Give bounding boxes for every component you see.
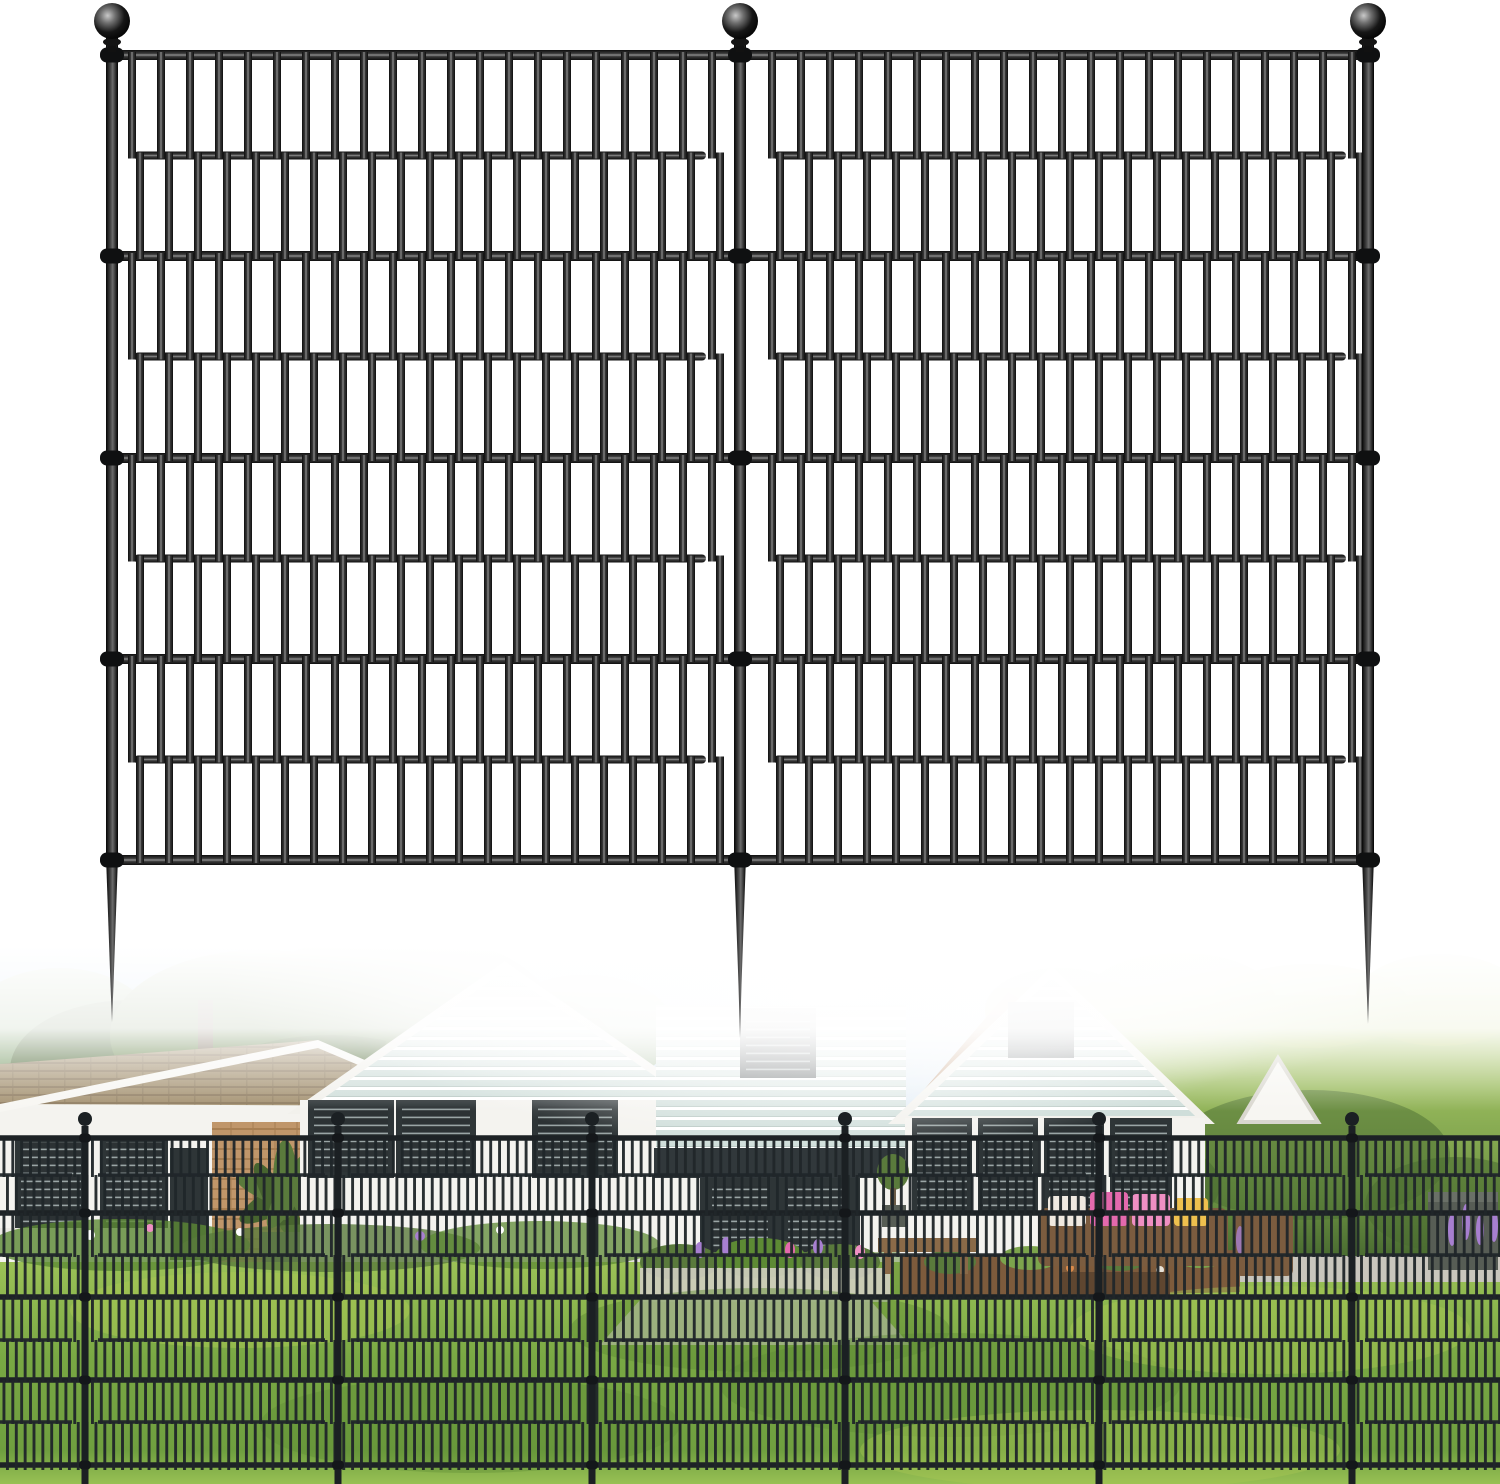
fence-bar [621,656,629,763]
fence-bar [716,556,724,663]
fence-bar [128,52,136,159]
fence-bar [310,153,318,260]
fence-bar [855,52,863,159]
fence-bar [629,556,637,663]
rail-connector [1356,652,1380,667]
fence-bar [505,253,513,360]
fence-bar [389,253,397,360]
fence-bar [1269,556,1277,663]
fence-bar [331,52,339,159]
fence-bar [360,455,368,562]
fence-bar [1145,52,1153,159]
fence-bar [1116,253,1124,360]
fence-bar [1232,253,1240,360]
fence-bar [950,556,958,663]
rail-connector [100,451,124,466]
fence-bar [1319,253,1327,360]
fence-bar [310,354,318,462]
fence-bar [571,354,579,462]
fence-bar [1269,757,1277,864]
fence-bar [863,556,871,663]
fence-bar [1058,52,1066,159]
fence-bar [921,757,929,864]
fence-bar [592,52,600,159]
fence-bar [826,52,834,159]
fence-bar [1240,556,1248,663]
scene-rail-connector [332,1293,344,1302]
rail-connector [1356,853,1380,868]
fence-bar [281,757,289,864]
fence-bar [542,153,550,260]
fence-bar [165,757,173,864]
fence-bar [513,556,521,663]
scene-rail-connector [1093,1461,1105,1470]
fence-bar [542,556,550,663]
fence-bar [600,354,608,462]
fence-bar [273,656,281,763]
fence-bar [273,52,281,159]
fence-bar [194,556,202,663]
fence-bar [368,757,376,864]
scene-fence-post [1096,1126,1103,1484]
fence-bar [476,253,484,360]
fence-bar [797,656,805,763]
fence-bar [942,253,950,360]
fence-bar [1029,253,1037,360]
scene-rail-connector [1346,1293,1358,1302]
fence-bar [863,354,871,462]
fence-bar [157,455,165,562]
fence-bar [418,455,426,562]
fence-bar [679,656,687,763]
scene-fence-inset-rail [605,1338,832,1342]
fence-bar [157,656,165,763]
fence-bar [1232,455,1240,562]
scene-fence-post [842,1126,849,1484]
fence-bar [273,455,281,562]
fence-bar [621,455,629,562]
fence-bar [1182,757,1190,864]
fence-bar [1327,153,1335,260]
fence-bar [892,757,900,864]
fence-bar [1037,153,1045,260]
fence-bar [476,455,484,562]
fence-bar [1327,556,1335,663]
fence-bar [281,153,289,260]
fence-bar [128,455,136,562]
scene-post-finial [1345,1112,1359,1126]
fence-product-scene [0,0,1500,1484]
fence-bar [1066,354,1074,462]
fence-bar [1211,757,1219,864]
scene-fence-post [82,1126,89,1484]
fence-bar [1058,455,1066,562]
fence-bar [1298,556,1306,663]
fence-bar [687,757,695,864]
scene-rail-connector [1346,1209,1358,1218]
scene-rail-connector [1093,1134,1105,1143]
fence-bar [244,253,252,360]
fence-bar [505,455,513,562]
fence-bar [447,253,455,360]
fence-bar [1203,656,1211,763]
fence-bar [339,556,347,663]
fence-bar [157,253,165,360]
fence-bar [310,556,318,663]
scene-rail-connector [839,1376,851,1385]
scene-fence-inset-rail [605,1253,832,1257]
fence-bar [1029,52,1037,159]
fence-bar [505,656,513,763]
fence-bar [331,455,339,562]
fence-bar [892,556,900,663]
fence-bar [658,153,666,260]
fence-bar [1298,153,1306,260]
fence-bar [884,656,892,763]
fence-bar [1174,52,1182,159]
fence-bar [834,153,842,260]
fence-bar [1319,656,1327,763]
fence-bar [621,52,629,159]
fence-bar [1348,52,1356,159]
scene-rail-connector [839,1293,851,1302]
rail-connector [1356,249,1380,264]
scene-rail-connector [79,1293,91,1302]
fence-bar [805,153,813,260]
fence-bar [629,153,637,260]
fence-bar [513,354,521,462]
scene-rail-connector [839,1209,851,1218]
fence-bar [942,455,950,562]
fence-bar [716,757,724,864]
fence-bar [447,656,455,763]
fence-bar [1008,153,1016,260]
flower [146,1224,154,1232]
fence-bar [426,354,434,462]
fence-bar [884,253,892,360]
fence-bar [1327,757,1335,864]
scene-rail-connector [1346,1461,1358,1470]
scene-fence-bars [6,1422,1496,1470]
fence-bar [563,253,571,360]
fence-bar [1058,253,1066,360]
fence-bar [484,757,492,864]
fence-bar [1240,354,1248,462]
fence-bar [592,253,600,360]
fence-bar [971,52,979,159]
fence-bar [1203,52,1211,159]
fence-bar [389,52,397,159]
fence-bar [1145,656,1153,763]
fence-bar [165,556,173,663]
fence-bar [1153,354,1161,462]
scene-post-finial [78,1112,92,1126]
fence-bar [1153,556,1161,663]
fence-bar [1095,354,1103,462]
scene-rail-connector [1346,1376,1358,1385]
fence-bar [855,455,863,562]
fence-bar [302,656,310,763]
fence-bar [1348,656,1356,763]
fence-bar [921,556,929,663]
fence-bar [1203,455,1211,562]
fence-bar [339,757,347,864]
fence-bar [708,455,716,562]
photo-top-fade [0,946,1500,1111]
fence-bar [1087,52,1095,159]
garden-bench [878,1238,978,1252]
fence-bar [1153,757,1161,864]
post-finial-ball [722,3,758,39]
fence-bar [1000,656,1008,763]
post-finial-ball [94,3,130,39]
fence-bar [687,153,695,260]
fence-bar [826,455,834,562]
fence-bar [360,253,368,360]
fence-bar [339,354,347,462]
scene-rail-connector [1346,1134,1358,1143]
fence-bar [302,455,310,562]
fence-bar [136,556,144,663]
fence-bar [1232,52,1240,159]
fence-bar [768,52,776,159]
fence-bar [1211,556,1219,663]
fence-bar [331,656,339,763]
fence-bar [194,153,202,260]
scene-fence-inset-rail [605,1173,832,1177]
fence-bar [716,354,724,462]
scene-post-finial [585,1112,599,1126]
fence-bar [1203,253,1211,360]
scene-rail-connector [332,1209,344,1218]
fence-bar [194,757,202,864]
fence-bar [397,354,405,462]
fence-bar [1269,354,1277,462]
fence-bar [484,354,492,462]
fence-bar [252,757,260,864]
fence-bar [252,354,260,462]
fence-bar [979,757,987,864]
scene-rail-connector [586,1461,598,1470]
fence-bar [534,656,542,763]
fence-bar [1008,757,1016,864]
fence-bar [1095,757,1103,864]
scene-fence-bars [6,1255,1496,1299]
fence-bar [273,253,281,360]
fence-bar [186,656,194,763]
fence-bar [426,153,434,260]
fence-bar [950,153,958,260]
fence-bar [1087,656,1095,763]
fence-bar [1182,153,1190,260]
fence-bar [1145,253,1153,360]
fence-bar [921,153,929,260]
post-finial-ball [1350,3,1386,39]
fence-bar [223,153,231,260]
fence-bar [950,757,958,864]
fence-bar [215,253,223,360]
fence-bar [426,556,434,663]
fence-bar [863,757,871,864]
fence-bar [571,153,579,260]
fence-bar [776,556,784,663]
rail-connector [728,249,752,264]
rail-connector [728,853,752,868]
fence-bar [244,52,252,159]
fence-bar [650,253,658,360]
fence-bar [418,52,426,159]
fence-bar [1261,656,1269,763]
fence-bar [913,52,921,159]
fence-bar [1174,253,1182,360]
fence-post [1362,36,1374,864]
fence-bar [513,153,521,260]
fence-bar [913,455,921,562]
fence-bar [1348,455,1356,562]
fence-bar [136,153,144,260]
fence-bar [863,153,871,260]
fence-bar [339,153,347,260]
rail-connector [1356,451,1380,466]
fence-bar [1211,153,1219,260]
fence-bar [368,556,376,663]
fence-bar [1348,253,1356,360]
fence-bar [484,556,492,663]
fence-bar [1116,52,1124,159]
finial-collar [731,38,749,46]
fence-bar [215,52,223,159]
fence-bar [834,354,842,462]
scene-rail-connector [586,1134,598,1143]
fence-bar [834,556,842,663]
fence-bar [1124,757,1132,864]
fence-bar [281,556,289,663]
fence-bar [600,556,608,663]
fence-bar [368,354,376,462]
fence-bar [708,253,716,360]
fence-bar [194,354,202,462]
fence-bar [1095,556,1103,663]
fence-bar [389,656,397,763]
fence-bar [534,253,542,360]
fence-bar [776,354,784,462]
fence-bar [302,253,310,360]
fence-bar [1087,455,1095,562]
fence-bar [563,455,571,562]
fence-bar [979,354,987,462]
fence-bar [1124,153,1132,260]
fence-bar [884,455,892,562]
scene-rail-connector [79,1461,91,1470]
scene-rail-connector [79,1376,91,1385]
fence-bar [186,52,194,159]
fence-bar [455,757,463,864]
fence-post [106,36,118,864]
fence-bar [971,656,979,763]
scene-rail-connector [586,1209,598,1218]
product-listing-image [0,0,1500,1484]
fence-bar [571,556,579,663]
fence-bar [1174,455,1182,562]
fence-bar [252,153,260,260]
fence-bar [658,757,666,864]
fence-bar [921,354,929,462]
fence-bar [658,354,666,462]
fence-bar [592,656,600,763]
fence-bar [913,253,921,360]
fence-bar [397,556,405,663]
rail-connector [100,853,124,868]
fence-bar [1327,354,1335,462]
fence-bar [1261,253,1269,360]
fence-bar [600,757,608,864]
fence-bar [1066,757,1074,864]
fence-bar [797,455,805,562]
fence-bar [310,757,318,864]
fence-bar [128,253,136,360]
fence-bar [884,52,892,159]
fence-bar [136,757,144,864]
fence-bar [1058,656,1066,763]
fence-bar [1037,757,1045,864]
fence-bar [971,455,979,562]
fence-bar [281,354,289,462]
fence-bar [687,354,695,462]
scene-fence-bars [6,1175,1496,1215]
scene-fence-post [335,1126,342,1484]
fence-bar [855,656,863,763]
fence-bar [1298,354,1306,462]
fence-bar [1124,354,1132,462]
fence-bar [1037,354,1045,462]
fence-bar [534,455,542,562]
photo-backdrop [0,840,1500,1484]
scene-fence-post [1349,1126,1356,1484]
fence-bar [563,52,571,159]
fence-bar [1000,455,1008,562]
scene-post-finial [1092,1112,1106,1126]
fence-bar [716,153,724,260]
fence-bar [629,757,637,864]
fence-bar [1319,52,1327,159]
rail-connector [100,652,124,667]
fence-bar [826,656,834,763]
fence-bar [397,153,405,260]
fence-bar [389,455,397,562]
fence-bar [186,455,194,562]
scene-rail-connector [1093,1293,1105,1302]
fence-bar [658,556,666,663]
fence-bar [165,354,173,462]
fence-bar [1261,52,1269,159]
scene-rail-connector [332,1461,344,1470]
fence-bar [542,757,550,864]
fence-bar [892,153,900,260]
fence-bar [1000,253,1008,360]
fence-bar [165,153,173,260]
fence-bar [1240,153,1248,260]
fence-bar [534,52,542,159]
fence-bar [621,253,629,360]
fence-bar [505,52,513,159]
fence-bar [1298,757,1306,864]
fence-bar [797,253,805,360]
fence-bar [805,354,813,462]
scene-rail-connector [332,1134,344,1143]
fence-bar [950,354,958,462]
fence-bar [942,52,950,159]
fence-bar [1000,52,1008,159]
